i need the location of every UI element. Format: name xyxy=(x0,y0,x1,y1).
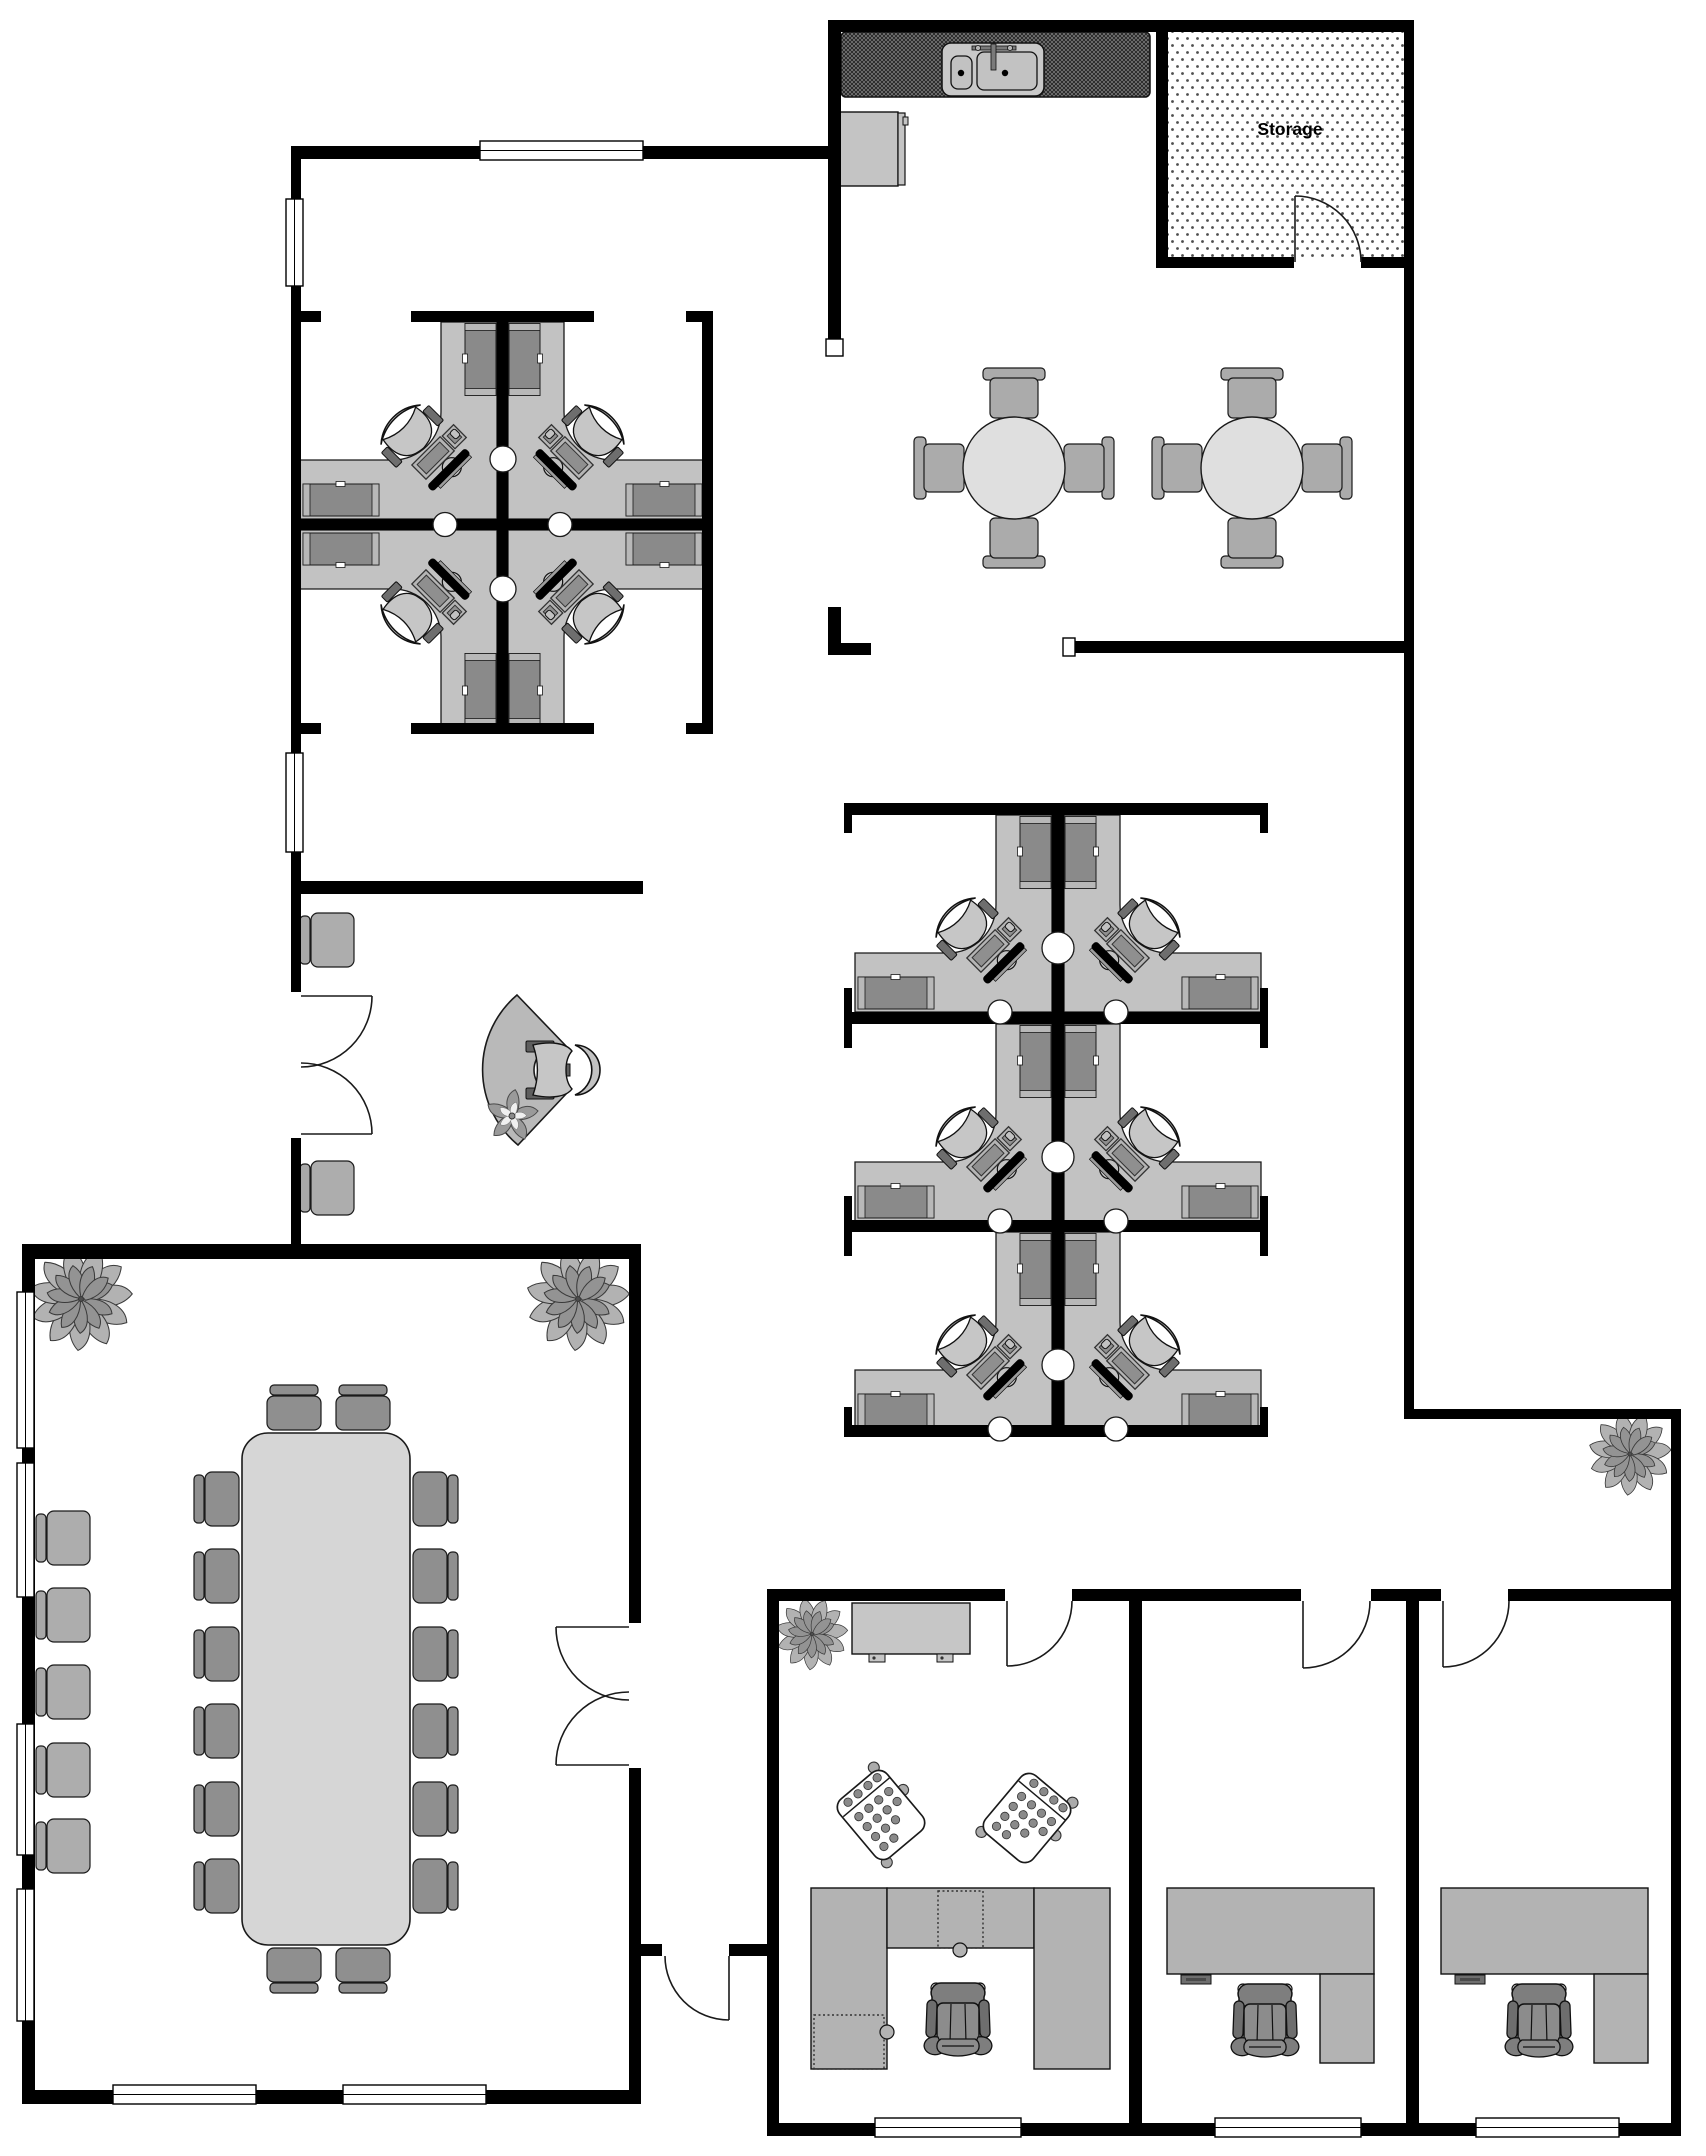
svg-text:Storage: Storage xyxy=(1257,119,1322,139)
